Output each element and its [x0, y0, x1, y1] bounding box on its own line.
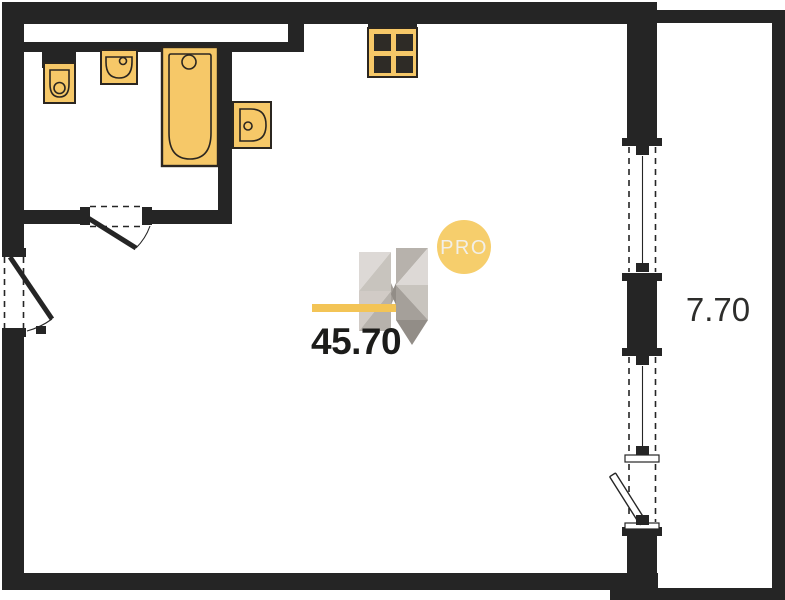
window-1-tab-top — [636, 146, 649, 155]
wall-bottom — [2, 573, 658, 590]
wall-right-segment-c — [627, 536, 657, 590]
wall-bathroom-bottom-right — [152, 210, 232, 224]
wall-right-cap-3 — [622, 348, 662, 356]
window-1 — [629, 146, 656, 272]
main-area-label: 45.70 — [311, 321, 401, 362]
bathroom-fixtures — [42, 47, 271, 166]
bathroom-jamb-right — [142, 207, 152, 225]
stove-burner-1 — [374, 34, 391, 51]
balcony-door-sill-top — [625, 455, 659, 462]
wall-right-segment-a — [627, 2, 657, 138]
stove-icon — [368, 23, 417, 77]
wall-right-cap-2 — [622, 273, 662, 281]
wall-top — [2, 2, 657, 24]
toilet-icon — [42, 47, 76, 103]
wall-bathroom-bottom-left — [24, 210, 80, 224]
entrance-door-leaf — [10, 257, 52, 319]
sink-faucet — [244, 122, 252, 130]
floor-plan: PRO 45.70 7.70 — [0, 0, 785, 600]
walls — [2, 2, 785, 600]
wall-left-upper — [2, 2, 24, 250]
washbasin-icon — [101, 50, 137, 84]
wall-right-segment-b — [627, 281, 657, 348]
wall-balcony-top — [657, 10, 785, 23]
window-2 — [629, 356, 656, 455]
entrance-jamb-bottom — [2, 328, 26, 337]
stove-burner-4 — [396, 56, 413, 73]
toilet-drain — [54, 83, 65, 94]
window-2-tab-top — [636, 356, 649, 365]
balcony-door-hinge — [636, 515, 649, 525]
bathroom-door-leaf — [88, 218, 136, 248]
pro-badge-label: PRO — [440, 237, 488, 259]
pro-badge: PRO — [437, 220, 491, 274]
bathroom-door-swing-arc — [136, 226, 150, 248]
wall-balcony-right — [772, 10, 785, 600]
sink-icon — [228, 102, 271, 148]
wall-left-lower — [2, 337, 24, 575]
window-1-tab-bottom — [636, 263, 649, 272]
bathtub-icon — [162, 47, 218, 166]
stove-burner-2 — [396, 34, 413, 51]
entrance-jamb-top — [2, 248, 26, 257]
stove-burner-3 — [374, 56, 391, 73]
bathtub-drain — [182, 55, 196, 69]
duct-end-cap — [288, 24, 304, 52]
wall-right-cap-1 — [622, 138, 662, 146]
balcony-area-label: 7.70 — [686, 291, 750, 328]
balcony-door — [610, 455, 659, 529]
window-2-tab-bottom — [636, 446, 649, 455]
bathroom-jamb-left — [80, 207, 90, 225]
entrance-door — [2, 248, 52, 337]
bathroom-door — [80, 207, 152, 249]
washbasin-faucet — [120, 58, 127, 65]
logo-left-bar — [359, 252, 391, 331]
